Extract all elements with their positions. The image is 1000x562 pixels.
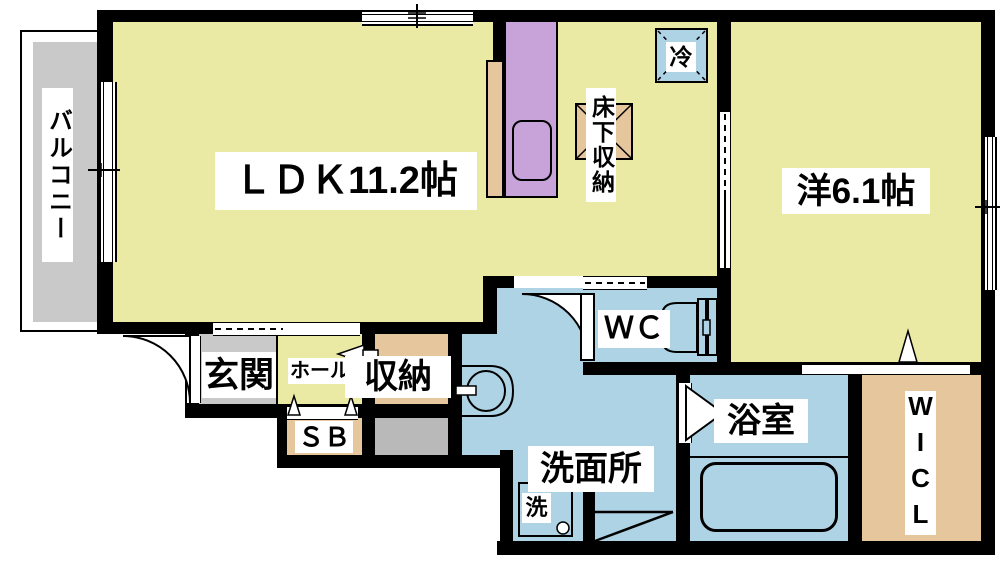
dashed-line: [724, 114, 726, 188]
window-balcony-door: [99, 82, 117, 262]
window-rail: [362, 14, 473, 22]
slider-pocket-dashed: [719, 112, 731, 190]
window-entrance-dashed: [213, 322, 285, 336]
label-bathroom: 浴室: [714, 399, 808, 443]
label-shoebox: ＳＢ: [295, 421, 353, 453]
bathtub: [700, 462, 838, 532]
service-space: [375, 418, 448, 455]
label-washroom: 洗面所: [528, 446, 654, 492]
window-rail: [103, 82, 113, 262]
label-washing-machine: 洗: [522, 493, 551, 523]
entrance-step-line: [276, 334, 278, 404]
wall-kitchen-stub: [493, 22, 504, 60]
doorway-entrance: [186, 336, 201, 403]
label-ldk: ＬＤＫ11.2帖: [215, 152, 477, 210]
dashed-line: [215, 328, 283, 330]
window-ldk-north: [362, 10, 473, 26]
window-wc-dashed: [583, 276, 647, 290]
kitchen-sink: [512, 120, 552, 181]
label-underfloor-storage: 床下収納: [586, 88, 616, 202]
label-hall: ホール: [288, 358, 352, 384]
label-western: 洋6.1帖: [782, 168, 930, 214]
wall-sb-south: [277, 455, 513, 468]
label-balcony: バルコニー: [42, 88, 73, 262]
label-wicl: WICL: [905, 391, 936, 535]
label-entrance: 玄関: [202, 352, 276, 398]
kitchen-counter: [486, 60, 504, 198]
floorplan-canvas: バルコニー ＬＤＫ11.2帖 洋6.1帖 冷 床下収納 玄関 ホール 収納 ＳＢ…: [0, 0, 1000, 562]
label-wc: ＷＣ: [598, 310, 670, 348]
wall-bottom: [497, 541, 995, 555]
label-storage: 収納: [345, 356, 451, 398]
opening-ldk-hall: [285, 322, 360, 336]
door-panel-line: [724, 190, 726, 268]
dashed-line: [585, 282, 645, 284]
sliding-door-ldk-western: [719, 190, 731, 268]
window-western-east: [983, 137, 997, 290]
label-refrigerator: 冷: [666, 42, 696, 72]
window-rail: [987, 137, 993, 290]
wall-bath-wicl-divider: [848, 375, 862, 541]
entrance-door-swing: [123, 336, 190, 403]
doorway-ldk-washroom: [513, 276, 585, 288]
room-washroom-west: [462, 333, 595, 455]
opening-shoebox: [287, 406, 358, 420]
opening-wicl: [802, 364, 970, 375]
door-bathroom-panel: [678, 383, 692, 443]
wall-jog: [483, 276, 497, 334]
